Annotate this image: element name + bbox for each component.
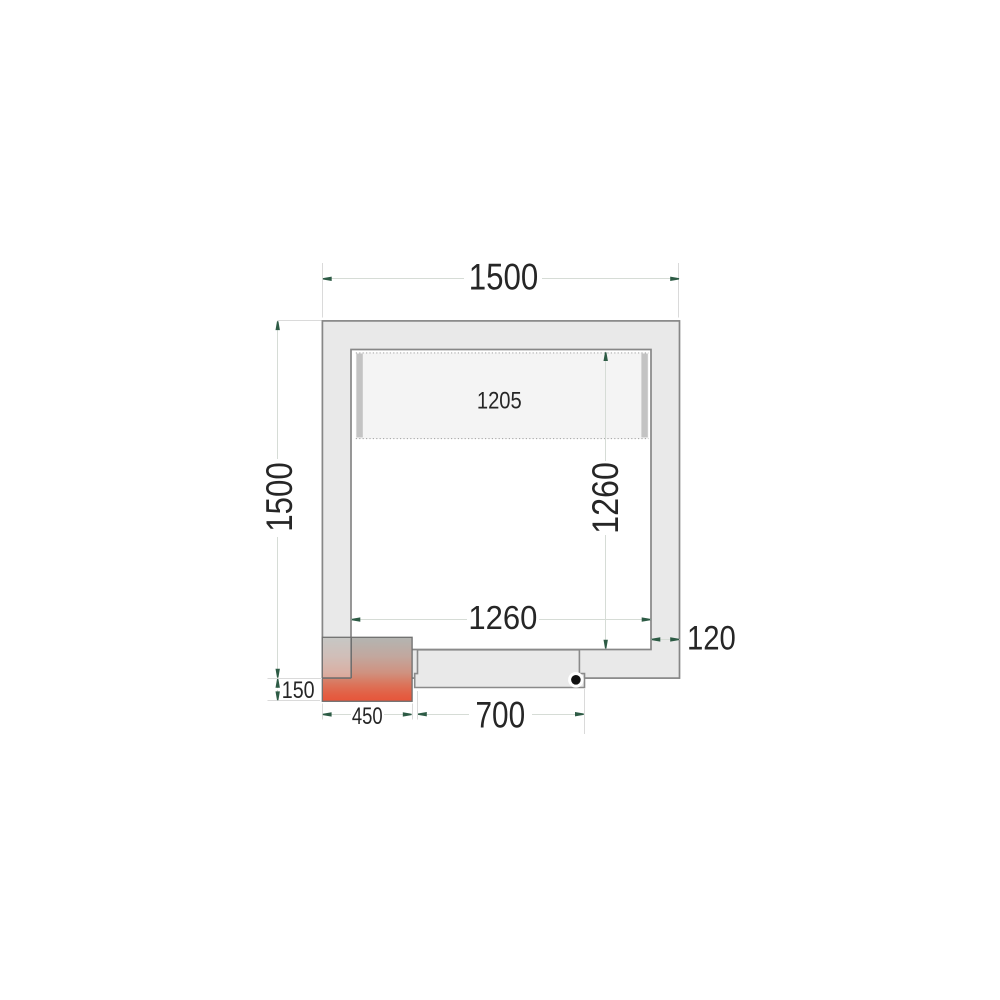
svg-text:450: 450: [352, 703, 383, 730]
svg-text:1260: 1260: [468, 599, 537, 636]
svg-text:1260: 1260: [585, 462, 627, 534]
svg-text:120: 120: [687, 618, 736, 657]
svg-text:1205: 1205: [477, 387, 522, 414]
svg-text:150: 150: [282, 676, 315, 703]
svg-text:1500: 1500: [469, 257, 538, 298]
svg-text:1500: 1500: [259, 462, 300, 531]
svg-text:700: 700: [475, 695, 525, 736]
